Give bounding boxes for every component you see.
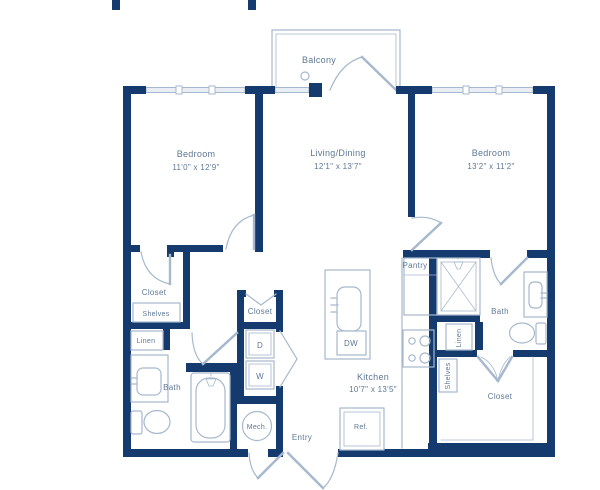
dryer-label: D bbox=[257, 341, 263, 350]
bedroom-left-label: Bedroom bbox=[177, 149, 216, 159]
shower-head-left-icon bbox=[206, 374, 216, 386]
closet-hall-label: Closet bbox=[248, 307, 273, 316]
bath-right-door-leaf bbox=[501, 258, 527, 284]
shelves-left-label: Shelves bbox=[142, 311, 169, 318]
balcony-door-handle bbox=[301, 72, 309, 80]
bedroom-right-label: Bedroom bbox=[472, 148, 511, 158]
bedroom-left-window bbox=[146, 88, 245, 93]
hall-closet-bifold-door bbox=[246, 294, 276, 305]
pantry-label: Pantry bbox=[403, 261, 428, 270]
linen-right-label: Linen bbox=[456, 329, 463, 348]
closet-left-door-arc bbox=[141, 252, 170, 284]
floorplan-svg: Balcony Bedroom 11'0" x 12'9" Living/Din… bbox=[0, 0, 600, 490]
dishwasher-label: DW bbox=[344, 339, 358, 348]
kitchen-sink-icon bbox=[337, 287, 361, 331]
toilet-left-icon bbox=[144, 411, 170, 434]
refrigerator-label: Ref. bbox=[354, 424, 368, 431]
bedroom-right-window bbox=[432, 88, 533, 93]
bath-right-door-arc bbox=[491, 258, 501, 284]
kitchen-fixtures bbox=[325, 258, 437, 450]
bathtub-icon bbox=[196, 378, 225, 438]
toilet-right-tank bbox=[536, 323, 546, 344]
bathtub-outer bbox=[191, 373, 230, 442]
washer-label: W bbox=[256, 372, 264, 381]
mech-door-arc bbox=[249, 453, 258, 478]
living-label: Living/Dining bbox=[310, 148, 365, 158]
kitchen-dims: 10'7" x 13'5" bbox=[349, 385, 397, 394]
bedroom-right-door-leaf bbox=[412, 223, 441, 250]
living-dims: 12'1" x 13'7" bbox=[314, 162, 362, 171]
closet-right-door-right-leaf bbox=[498, 357, 512, 381]
closet-bedroom-left-label: Closet bbox=[142, 288, 167, 297]
toilet-right-icon bbox=[510, 323, 535, 343]
living-window bbox=[275, 88, 309, 93]
balcony-label: Balcony bbox=[302, 55, 336, 65]
windows bbox=[146, 86, 533, 94]
bedroom-right-door-arc bbox=[412, 217, 441, 223]
bath-left-door-arc bbox=[192, 333, 203, 364]
kitchen-label: Kitchen bbox=[357, 372, 389, 382]
floorplan: Balcony Bedroom 11'0" x 12'9" Living/Din… bbox=[0, 0, 600, 490]
sink-left-icon bbox=[137, 368, 161, 395]
laundry-bifold-door bbox=[280, 331, 297, 387]
shelves-right-label: Shelves bbox=[445, 362, 452, 389]
mech-label: Mech. bbox=[247, 424, 268, 431]
entry-door-leaf bbox=[288, 453, 323, 488]
faucet-left-icon bbox=[131, 378, 137, 384]
sink-right-icon bbox=[529, 282, 542, 308]
entry-door-arc bbox=[323, 453, 338, 488]
bedroom-right-dims: 13'2" x 11'2" bbox=[467, 162, 514, 171]
bath-left-label: Bath bbox=[163, 383, 181, 392]
cropped-wall-marks bbox=[112, 0, 256, 10]
linen-left-label: Linen bbox=[137, 338, 156, 345]
toilet-left-tank bbox=[131, 411, 142, 434]
closet-right-door-left-leaf bbox=[478, 357, 498, 381]
bedroom-left-dims: 11'0" x 12'9" bbox=[172, 163, 219, 172]
bedroom-left-door-arc bbox=[226, 215, 254, 249]
bath-left-door-leaf bbox=[203, 333, 237, 364]
bath-right-fixtures bbox=[437, 258, 547, 440]
closet-right-label: Closet bbox=[488, 392, 513, 401]
shower-head-right-icon bbox=[454, 258, 463, 269]
balcony-door-leaf bbox=[362, 57, 396, 90]
entry-label: Entry bbox=[292, 433, 312, 442]
bath-right-label: Bath bbox=[491, 307, 509, 316]
vanity-right bbox=[524, 272, 547, 317]
